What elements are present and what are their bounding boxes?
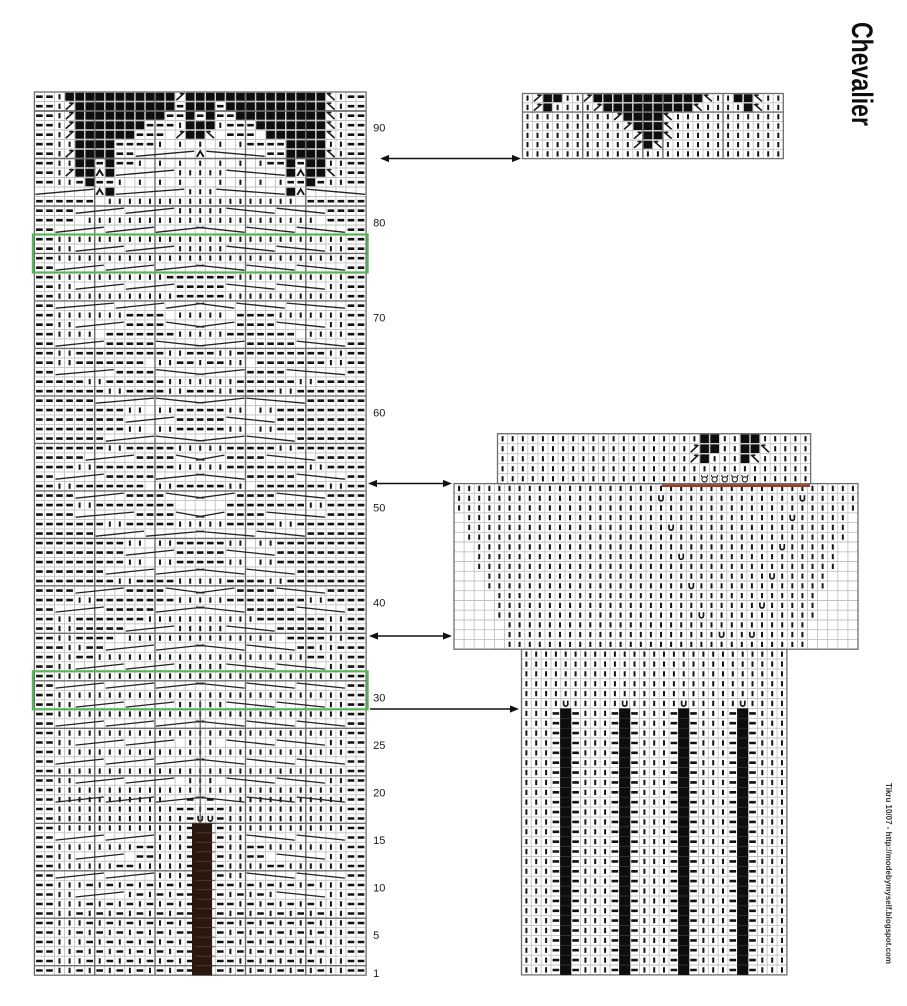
svg-text:90: 90 <box>373 123 385 135</box>
svg-text:40: 40 <box>373 598 385 610</box>
svg-text:80: 80 <box>373 218 385 230</box>
svg-text:15: 15 <box>373 835 385 847</box>
svg-text:60: 60 <box>373 408 385 420</box>
svg-text:20: 20 <box>373 788 385 800</box>
svg-text:25: 25 <box>373 740 385 752</box>
svg-text:70: 70 <box>373 313 385 325</box>
svg-text:30: 30 <box>373 693 385 705</box>
svg-text:50: 50 <box>373 503 385 515</box>
svg-text:10: 10 <box>373 883 385 895</box>
svg-text:1: 1 <box>373 968 379 980</box>
svg-text:Tikru 10/07 - http://modebymys: Tikru 10/07 - http://modebymyself.blogsp… <box>884 783 894 964</box>
svg-text:5: 5 <box>373 930 379 942</box>
svg-text:Chevalier: Chevalier <box>845 22 878 126</box>
